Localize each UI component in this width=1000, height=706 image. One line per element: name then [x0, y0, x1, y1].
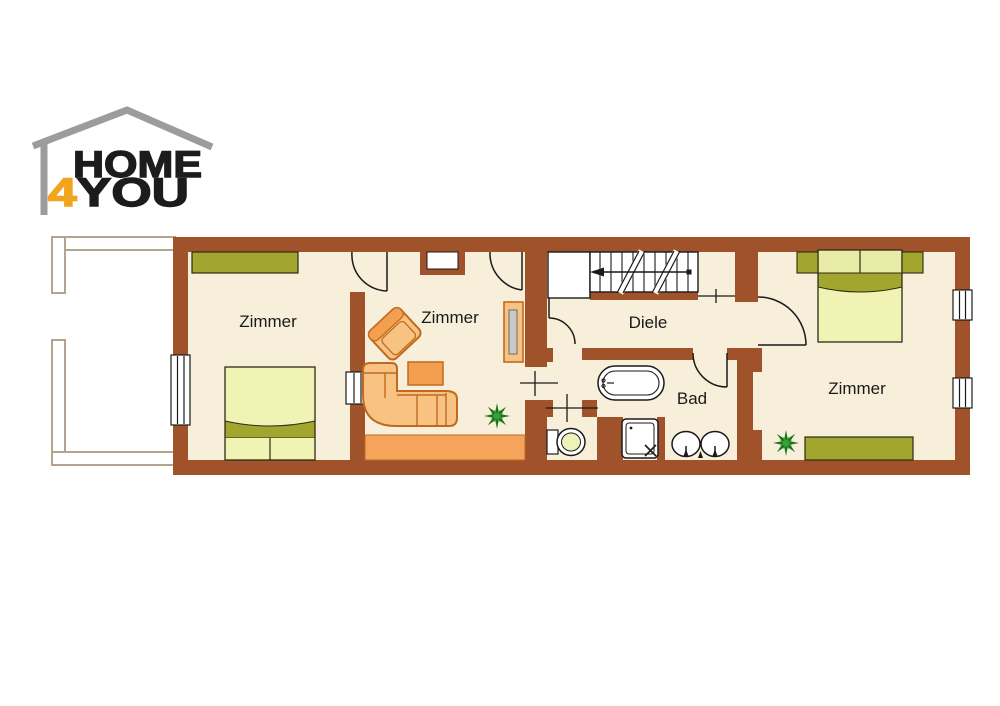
room-label-bath: Bad — [677, 389, 707, 408]
balcony-icon — [52, 237, 175, 465]
room-label-bedroom-right: Zimmer — [828, 379, 886, 398]
brand-word-bottom: 4YOU — [48, 171, 189, 215]
plant-icon — [773, 430, 799, 456]
shower-icon — [622, 419, 658, 458]
chimney-niche-icon — [427, 252, 458, 269]
bathtub-icon — [598, 366, 664, 400]
tv-board-icon — [504, 302, 523, 362]
plant-icon — [484, 403, 510, 429]
window-icon — [953, 290, 972, 320]
floorplan-page: HOME 4YOU — [0, 0, 1000, 706]
nightstand-icon — [902, 252, 923, 273]
window-icon — [953, 378, 972, 408]
double-bed-icon — [818, 250, 902, 342]
nightstand-icon — [797, 252, 818, 273]
room-label-living: Zimmer — [421, 308, 479, 327]
dresser-icon — [805, 437, 913, 460]
room-label-hall: Diele — [629, 313, 668, 332]
floorplan-svg: HOME 4YOU — [0, 0, 1000, 706]
toilet-icon — [547, 429, 585, 456]
room-label-bedroom-left: Zimmer — [239, 312, 297, 331]
parquet-strip — [365, 435, 525, 460]
brand-digit: 4 — [48, 171, 78, 215]
washbasin-icon — [672, 432, 700, 457]
brand-logo: HOME 4YOU — [33, 110, 212, 215]
brand-you: YOU — [77, 171, 189, 215]
wall-notch — [753, 372, 762, 430]
staircase-icon — [548, 251, 698, 298]
window-icon — [171, 355, 190, 425]
double-bed-icon — [225, 367, 315, 460]
wardrobe-icon — [192, 252, 298, 273]
coffee-table-icon — [408, 362, 443, 385]
